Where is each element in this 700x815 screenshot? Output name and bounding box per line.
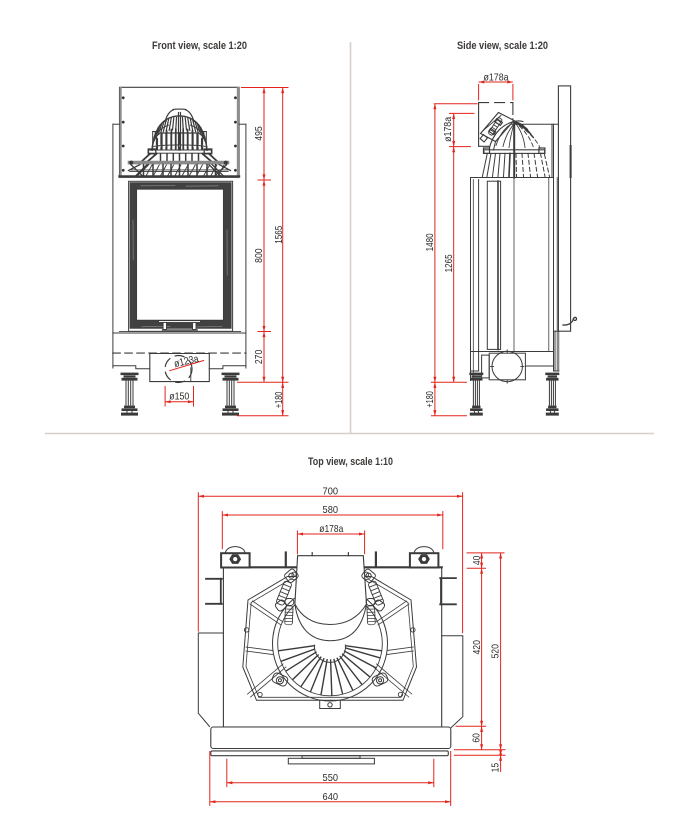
svg-text:60: 60 [471, 733, 483, 743]
svg-text:ø178a: ø178a [319, 523, 343, 535]
svg-text:Side view, scale 1:20: Side view, scale 1:20 [457, 40, 548, 52]
svg-text:700: 700 [323, 485, 339, 497]
svg-text:1480: 1480 [424, 233, 436, 251]
svg-text:15: 15 [490, 763, 502, 773]
svg-text:ø178a: ø178a [442, 117, 454, 142]
svg-text:420: 420 [471, 640, 483, 655]
svg-text:Top view, scale 1:10: Top view, scale 1:10 [308, 456, 393, 468]
svg-text:+180: +180 [424, 391, 436, 408]
svg-text:640: 640 [323, 791, 339, 803]
svg-text:ø178a: ø178a [484, 71, 509, 83]
svg-text:800: 800 [253, 248, 265, 263]
svg-text:495: 495 [253, 126, 265, 141]
svg-text:ø150: ø150 [169, 390, 189, 402]
svg-text:+180: +180 [273, 392, 285, 409]
svg-text:520: 520 [490, 644, 502, 659]
svg-text:1265: 1265 [443, 254, 455, 272]
svg-text:1565: 1565 [273, 226, 285, 244]
svg-text:550: 550 [323, 772, 339, 784]
svg-text:Front view, scale 1:20: Front view, scale 1:20 [152, 40, 247, 52]
svg-text:40: 40 [471, 556, 483, 566]
svg-text:580: 580 [323, 504, 339, 516]
svg-text:270: 270 [253, 350, 265, 365]
